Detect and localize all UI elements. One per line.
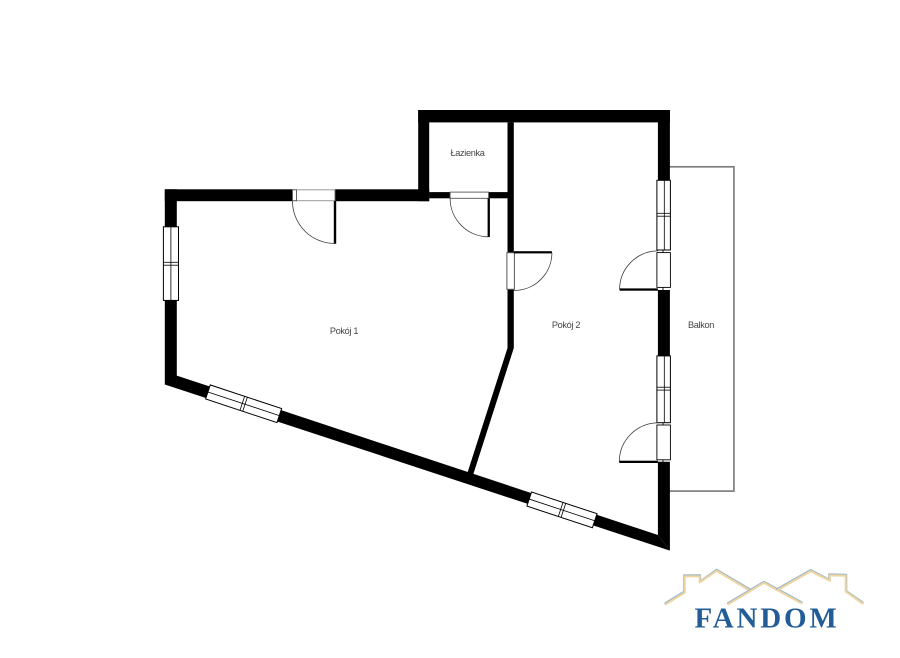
svg-text:Pokój 1: Pokój 1 bbox=[330, 326, 358, 336]
svg-text:FANDOM: FANDOM bbox=[694, 603, 839, 635]
svg-text:Balkon: Balkon bbox=[688, 320, 714, 330]
svg-text:Pokój 2: Pokój 2 bbox=[552, 320, 580, 330]
svg-text:Łazienka: Łazienka bbox=[451, 148, 486, 158]
